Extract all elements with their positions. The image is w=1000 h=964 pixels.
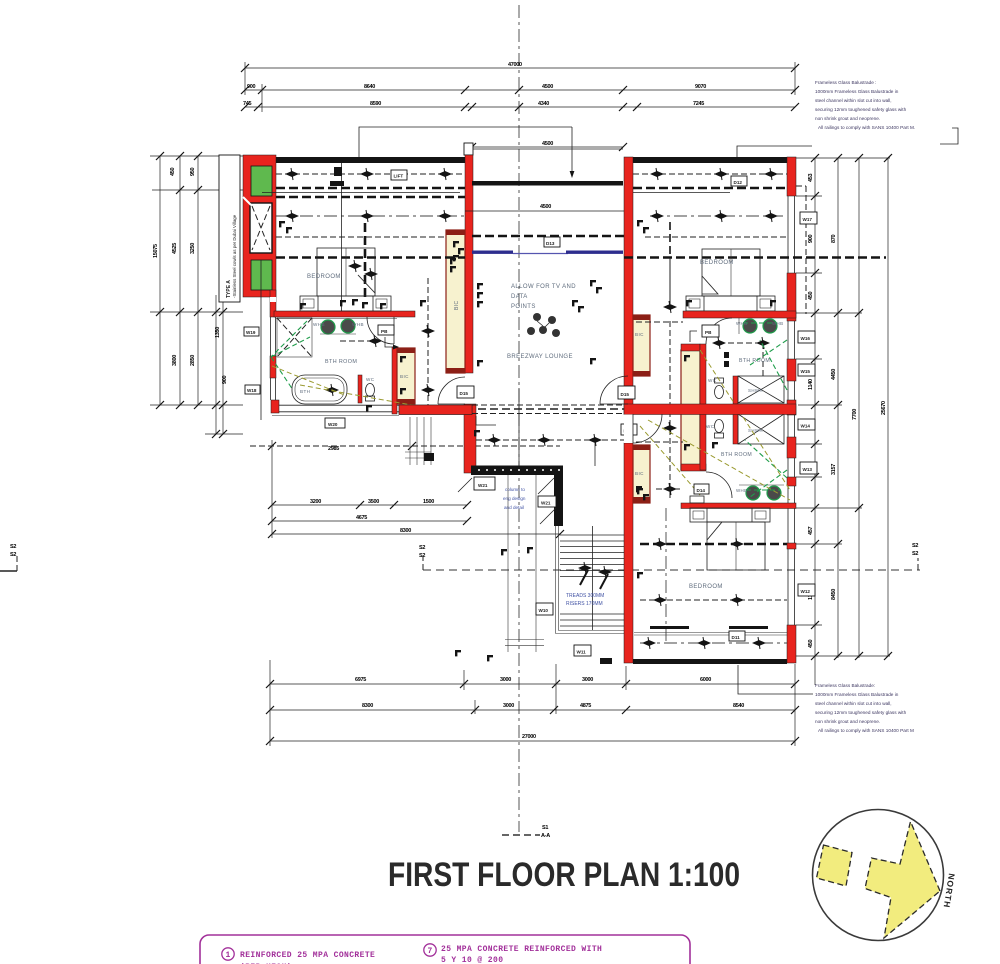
svg-text:BEDROOM: BEDROOM xyxy=(689,584,723,590)
svg-text:1000mm Frameless Glass Balustr: 1000mm Frameless Glass Balustrade in xyxy=(815,692,899,697)
svg-text:450: 450 xyxy=(808,291,814,300)
svg-text:RISERS 170MM: RISERS 170MM xyxy=(566,601,603,607)
svg-text:745: 745 xyxy=(243,101,252,107)
svg-text:A-A: A-A xyxy=(541,833,550,839)
svg-text:870: 870 xyxy=(831,234,837,243)
svg-text:8540: 8540 xyxy=(733,703,744,709)
svg-text:950: 950 xyxy=(190,167,196,176)
svg-text:WHB: WHB xyxy=(352,322,364,327)
svg-text:W14: W14 xyxy=(801,424,811,429)
svg-text:D15: D15 xyxy=(460,391,469,396)
svg-text:LIFT: LIFT xyxy=(394,174,404,179)
svg-text:1350: 1350 xyxy=(215,327,221,338)
svg-text:BEDROOM: BEDROOM xyxy=(307,274,341,280)
svg-text:7700: 7700 xyxy=(852,409,858,420)
svg-text:1000mm Frameless Glass Balustr: 1000mm Frameless Glass Balustrade in xyxy=(815,89,899,94)
svg-text:DATA: DATA xyxy=(511,294,528,300)
svg-text:BTH ROOM: BTH ROOM xyxy=(739,358,770,364)
svg-text:W16: W16 xyxy=(801,336,811,341)
svg-text:3000: 3000 xyxy=(503,703,514,709)
svg-text:3000: 3000 xyxy=(582,677,593,683)
svg-text:steel channel within slot cut: steel channel within slot cut into wall, xyxy=(815,98,892,103)
svg-text:BIC: BIC xyxy=(635,332,644,337)
svg-text:WHB: WHB xyxy=(736,321,747,326)
svg-text:WC: WC xyxy=(708,378,717,383)
svg-text:BTH ROOM: BTH ROOM xyxy=(721,452,752,458)
svg-text:non shrink grout and neoprene.: non shrink grout and neoprene. xyxy=(815,116,880,121)
svg-text:15075: 15075 xyxy=(153,244,159,258)
svg-text:-Stainless Steel cowls as per: -Stainless Steel cowls as per Dubai Vill… xyxy=(232,214,237,298)
svg-text:TREADS 300MM: TREADS 300MM xyxy=(566,593,604,599)
svg-text:and detail: and detail xyxy=(504,505,524,510)
svg-text:4500: 4500 xyxy=(542,141,553,147)
svg-text:900: 900 xyxy=(247,84,256,90)
svg-text:W20: W20 xyxy=(328,422,338,427)
svg-text:450: 450 xyxy=(808,639,814,648)
svg-text:S2: S2 xyxy=(10,544,16,550)
svg-text:S1: S1 xyxy=(542,825,548,831)
svg-text:WC: WC xyxy=(366,377,375,382)
svg-text:457: 457 xyxy=(808,526,814,535)
svg-text:WHB: WHB xyxy=(313,322,325,327)
svg-text:REINFORCED 25 MPA CONCRETE: REINFORCED 25 MPA CONCRETE xyxy=(240,951,375,960)
svg-text:SHWR: SHWR xyxy=(748,388,763,393)
svg-text:W21: W21 xyxy=(478,483,488,488)
svg-text:1500: 1500 xyxy=(423,499,434,505)
svg-text:3500: 3500 xyxy=(368,499,379,505)
svg-text:BIC: BIC xyxy=(454,300,460,310)
svg-text:POINTS: POINTS xyxy=(511,304,536,310)
svg-text:WHB: WHB xyxy=(772,321,783,326)
svg-text:BTH ROOM: BTH ROOM xyxy=(325,359,357,365)
svg-text:8300: 8300 xyxy=(400,528,411,534)
svg-text:3000: 3000 xyxy=(500,677,511,683)
svg-text:27000: 27000 xyxy=(522,734,536,740)
svg-text:eng design: eng design xyxy=(503,496,526,501)
svg-text:3200: 3200 xyxy=(310,499,321,505)
svg-text:BIC: BIC xyxy=(400,374,409,379)
svg-text:900: 900 xyxy=(222,375,228,384)
svg-text:900: 900 xyxy=(808,234,814,243)
svg-text:6000: 6000 xyxy=(700,677,711,683)
svg-text:SHWR: SHWR xyxy=(748,428,763,433)
svg-text:W13: W13 xyxy=(803,467,813,472)
svg-text:D13: D13 xyxy=(546,241,555,246)
svg-text:450: 450 xyxy=(170,167,176,176)
svg-text:S2: S2 xyxy=(10,552,16,558)
svg-text:PB: PB xyxy=(381,329,388,334)
svg-text:8300: 8300 xyxy=(362,703,373,709)
svg-text:4500: 4500 xyxy=(542,84,553,90)
svg-text:BEDROOM: BEDROOM xyxy=(700,260,734,266)
svg-text:WC: WC xyxy=(706,424,715,429)
svg-text:3800: 3800 xyxy=(172,355,178,366)
svg-text:securing 12mm toughened safety: securing 12mm toughened safety glass wit… xyxy=(815,107,907,112)
svg-text:W12: W12 xyxy=(801,589,811,594)
svg-text:W19: W19 xyxy=(246,330,256,335)
svg-text:D15: D15 xyxy=(621,392,630,397)
svg-text:25 MPA CONCRETE REINFORCED WIT: 25 MPA CONCRETE REINFORCED WITH xyxy=(441,945,602,954)
svg-text:2850: 2850 xyxy=(190,355,196,366)
svg-text:5 Y 10 @ 200: 5 Y 10 @ 200 xyxy=(441,956,503,964)
svg-text:ALLOW FOR TV AND: ALLOW FOR TV AND xyxy=(511,284,576,290)
svg-text:W11: W11 xyxy=(577,650,587,655)
svg-text:steel channel within slot cut: steel channel within slot cut into wall, xyxy=(815,701,892,706)
svg-text:BIC: BIC xyxy=(635,471,644,476)
svg-text:1: 1 xyxy=(226,951,231,960)
svg-text:W18: W18 xyxy=(247,388,257,393)
svg-text:3250: 3250 xyxy=(190,243,196,254)
svg-text:All railings to comply with SA: All railings to comply with SANS 10400 P… xyxy=(818,125,915,130)
svg-text:BTH: BTH xyxy=(300,389,310,394)
svg-text:All railings to comply with SA: All railings to comply with SANS 10400 P… xyxy=(818,728,914,733)
svg-text:6975: 6975 xyxy=(355,677,366,683)
svg-text:2985: 2985 xyxy=(328,446,339,452)
svg-text:BREEZWAY LOUNGE: BREEZWAY LOUNGE xyxy=(507,354,573,360)
svg-text:Frameless Glass Balustrade:: Frameless Glass Balustrade: xyxy=(815,683,875,688)
svg-text:453: 453 xyxy=(808,173,814,182)
svg-text:securing 12mm toughened safety: securing 12mm toughened safety glass wit… xyxy=(815,710,907,715)
svg-text:non shrink grout and neoprene.: non shrink grout and neoprene. xyxy=(815,719,880,724)
svg-text:1140: 1140 xyxy=(808,379,814,390)
svg-text:S2: S2 xyxy=(419,545,425,551)
svg-text:W10: W10 xyxy=(539,608,549,613)
svg-text:8590: 8590 xyxy=(370,101,381,107)
svg-text:S2: S2 xyxy=(912,543,918,549)
svg-text:FIRST FLOOR PLAN 1:100: FIRST FLOOR PLAN 1:100 xyxy=(388,856,740,894)
svg-text:4675: 4675 xyxy=(356,515,367,521)
svg-text:7245: 7245 xyxy=(693,101,704,107)
svg-text:WHB: WHB xyxy=(736,488,747,493)
svg-text:25670: 25670 xyxy=(881,401,887,415)
svg-text:W17: W17 xyxy=(803,217,813,222)
svg-text:3157: 3157 xyxy=(831,464,837,475)
svg-text:W21: W21 xyxy=(541,501,551,506)
svg-text:4340: 4340 xyxy=(538,101,549,107)
svg-text:4500: 4500 xyxy=(540,204,551,210)
svg-text:4875: 4875 xyxy=(580,703,591,709)
svg-text:PB: PB xyxy=(705,330,712,335)
svg-text:D14: D14 xyxy=(697,488,706,493)
svg-text:7: 7 xyxy=(428,947,433,956)
svg-text:D11: D11 xyxy=(732,635,741,640)
svg-text:D12: D12 xyxy=(734,180,743,185)
svg-text:4525: 4525 xyxy=(172,243,178,254)
svg-text:4450: 4450 xyxy=(831,369,837,380)
svg-text:8450: 8450 xyxy=(831,589,837,600)
svg-text:W15: W15 xyxy=(801,369,811,374)
svg-text:9070: 9070 xyxy=(695,84,706,90)
svg-text:S2: S2 xyxy=(912,551,918,557)
svg-text:8640: 8640 xyxy=(364,84,375,90)
svg-text:Frameless Glass Balustrade :: Frameless Glass Balustrade : xyxy=(815,80,876,85)
svg-text:47000: 47000 xyxy=(508,62,522,68)
svg-text:S2: S2 xyxy=(419,553,425,559)
